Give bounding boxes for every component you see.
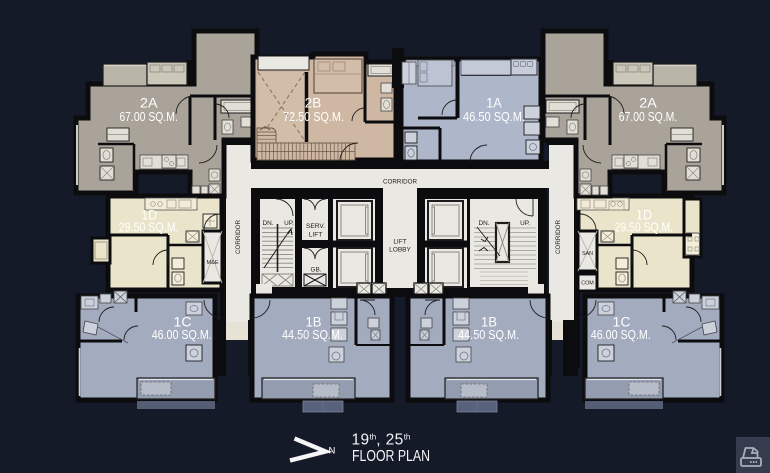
svg-text:67.00 SQ.M.: 67.00 SQ.M. [619,109,678,124]
svg-text:CORRIDOR: CORRIDOR [235,220,242,254]
svg-text:44.50 SQ.M.: 44.50 SQ.M. [282,327,343,342]
svg-text:29.50 SQ.M.: 29.50 SQ.M. [615,220,674,235]
svg-text:44.50 SQ.M.: 44.50 SQ.M. [458,327,519,342]
svg-text:DN.: DN. [262,220,273,227]
svg-text:29.50 SQ.M.: 29.50 SQ.M. [119,220,179,235]
svg-text:FLOOR PLAN: FLOOR PLAN [352,448,430,465]
svg-text:LIFT: LIFT [393,239,406,246]
svg-text:DN.: DN. [478,220,489,227]
svg-text:46.00 SQ.M.: 46.00 SQ.M. [152,327,212,342]
svg-text:72.50 SQ.M.: 72.50 SQ.M. [283,109,344,124]
svg-text:GB.: GB. [310,267,321,274]
svg-text:M&E: M&E [206,260,218,266]
svg-text:UP.: UP. [520,220,530,227]
svg-text:46.50 SQ.M.: 46.50 SQ.M. [463,109,525,124]
svg-text:SERV.: SERV. [306,223,325,230]
svg-text:CORRIDOR: CORRIDOR [383,179,417,186]
svg-text:SAN: SAN [582,251,593,257]
svg-text:LOBBY: LOBBY [389,247,411,254]
svg-text:67.00 SQ.M.: 67.00 SQ.M. [119,109,178,124]
svg-text:COM: COM [581,281,594,287]
svg-text:CORRIDOR: CORRIDOR [555,220,562,254]
svg-text:UP.: UP. [284,220,294,227]
svg-text:19th, 25th: 19th, 25th [352,432,411,449]
svg-text:46.00 SQ.M.: 46.00 SQ.M. [591,327,651,342]
svg-text:N: N [329,446,336,457]
svg-text:LIFT: LIFT [309,232,323,239]
